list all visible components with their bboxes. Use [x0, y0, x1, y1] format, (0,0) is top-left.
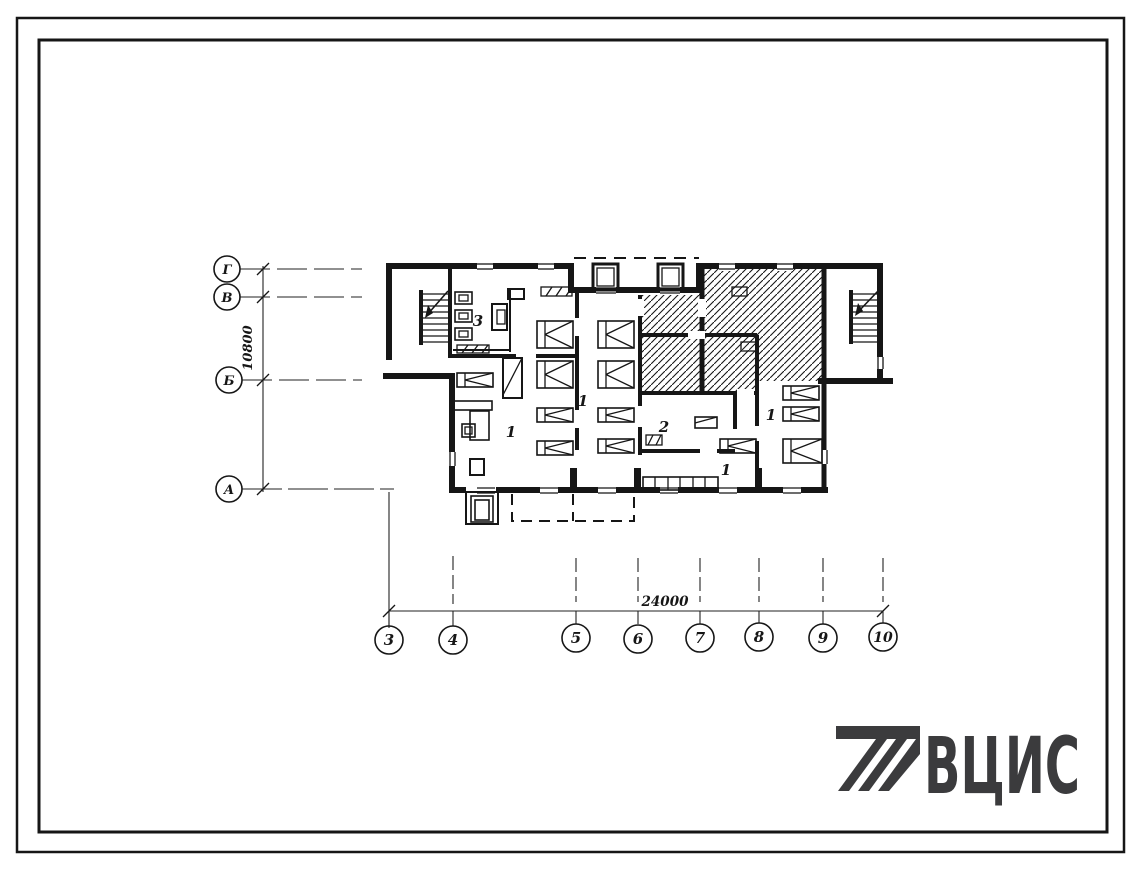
room-label: 1	[766, 406, 776, 424]
left-axis-markers: 10800 Г В Б А	[214, 256, 394, 502]
drawing-sheet: 10800 Г В Б А	[0, 0, 1139, 869]
logo-icon	[836, 726, 920, 791]
axis-label-row-b: Б	[222, 374, 234, 389]
axis-label-row-a: А	[223, 483, 235, 498]
bed-icon	[783, 386, 819, 400]
axis-label-row-v: В	[221, 291, 233, 306]
horizontal-dimension-label: 24000	[641, 594, 690, 610]
axis-label-col-5: 5	[571, 629, 581, 647]
bed-icon	[537, 321, 573, 348]
axis-label-col-6: 6	[633, 630, 644, 648]
beds-middle-room	[598, 321, 634, 453]
desk-group	[453, 401, 492, 475]
room-label: 2	[658, 418, 669, 436]
entrance-porch	[466, 492, 498, 524]
room-label: 3	[473, 312, 483, 330]
duty-room	[453, 288, 524, 353]
room-label: 1	[578, 392, 588, 410]
radiator-icon	[541, 287, 572, 296]
bed-icon	[537, 361, 573, 388]
logo-text: ВЦИС	[924, 722, 1080, 812]
bed-icon	[598, 321, 634, 348]
bed-icon	[537, 408, 573, 422]
stool-icon	[470, 459, 484, 475]
room-label: 1	[506, 423, 516, 441]
wardrobe-icon	[503, 358, 522, 398]
room-label: 1	[721, 461, 731, 479]
axis-label-col-3: 3	[384, 631, 394, 649]
balcony-top	[574, 258, 699, 290]
terrace-dashed-outline	[512, 494, 634, 521]
stair-left-icon	[421, 291, 450, 342]
axis-label-row-g: Г	[222, 263, 233, 278]
axis-label-col-9: 9	[818, 629, 829, 647]
axis-label-col-7: 7	[695, 629, 706, 647]
bed-icon	[783, 407, 819, 421]
bed-icon	[598, 439, 634, 453]
axis-label-col-8: 8	[754, 628, 765, 646]
beds-right-room	[783, 386, 822, 463]
bed-icon	[537, 441, 573, 455]
floor-plan-drawing: 10800 Г В Б А	[0, 0, 1139, 869]
stair-right-icon	[853, 291, 879, 342]
axis-label-col-4: 4	[448, 631, 458, 649]
logo: ВЦИС	[836, 722, 1080, 812]
bottom-axis-markers: 24000 3 4 5 6 7 8 9 10	[375, 492, 897, 654]
floor-plan: 3 1 1 2 1 1	[383, 258, 893, 524]
bed-icon	[457, 373, 493, 387]
page-frame-inner	[39, 40, 1107, 832]
axis-label-col-10: 10	[873, 630, 893, 646]
bed-icon	[598, 361, 634, 388]
vertical-dimension-label: 10800	[241, 325, 256, 370]
bed-icon	[598, 408, 634, 422]
